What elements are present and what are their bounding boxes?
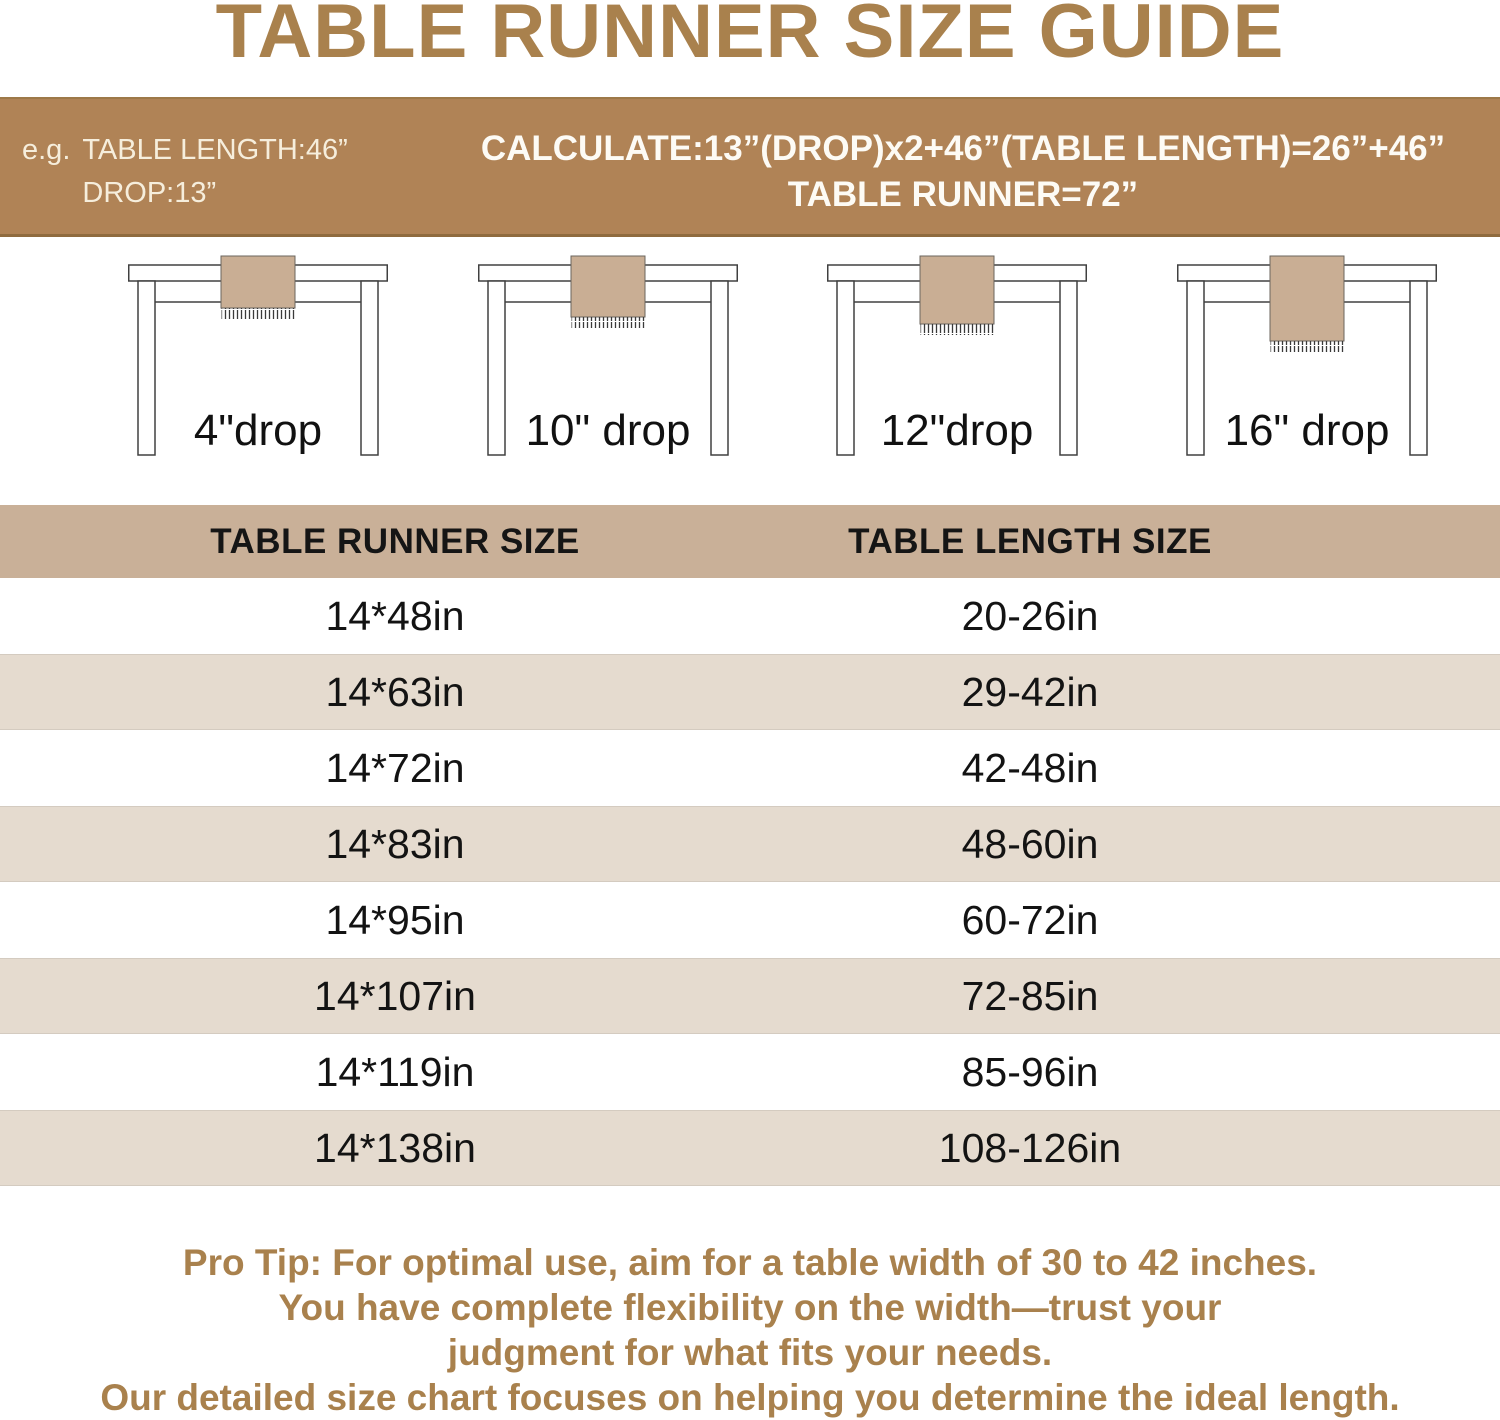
table-leg (1410, 281, 1427, 455)
example-lines: TABLE LENGTH:46” DROP:13” (82, 129, 347, 215)
pro-tip-line-3: judgment for what fits your needs. (0, 1330, 1500, 1375)
pro-tip-line-4: Our detailed size chart focuses on helpi… (0, 1375, 1500, 1420)
runner-size-value: 14*83in (0, 821, 790, 868)
table-length-value: 72-85in (790, 973, 1270, 1020)
runner (221, 256, 295, 308)
table-leg (1060, 281, 1077, 455)
runner-size-value: 14*119in (0, 1049, 790, 1096)
runner (920, 256, 994, 324)
column-header-table-length: TABLE LENGTH SIZE (790, 522, 1270, 562)
example-line-2: DROP:13” (82, 172, 347, 215)
table-length-value: 42-48in (790, 745, 1270, 792)
drop-label: 16" drop (1225, 406, 1390, 455)
runner-size-value: 14*63in (0, 669, 790, 716)
table-row: 14*83in 48-60in (0, 806, 1500, 882)
table-leg (711, 281, 728, 455)
runner-size-value: 14*95in (0, 897, 790, 944)
runner-size-value: 14*48in (0, 593, 790, 640)
runner-size-value: 14*72in (0, 745, 790, 792)
table-leg (1187, 281, 1204, 455)
table-drawing: 10" drop (478, 250, 738, 460)
calculation-block: CALCULATE:13”(DROP)x2+46”(TABLE LENGTH)=… (442, 126, 1484, 218)
table-length-value: 29-42in (790, 669, 1270, 716)
table-length-value: 60-72in (790, 897, 1270, 944)
runner-fringe (1270, 341, 1343, 352)
pro-tip-line-1: Pro Tip: For optimal use, aim for a tabl… (0, 1240, 1500, 1285)
runner-fringe (222, 308, 295, 319)
table-drawing: 4"drop (128, 250, 388, 460)
title-bar: TABLE RUNNER SIZE GUIDE (0, 0, 1500, 97)
table-length-value: 85-96in (790, 1049, 1270, 1096)
table-row: 14*72in 42-48in (0, 730, 1500, 806)
example-prefix: e.g. (22, 129, 70, 215)
table-drawing: 12"drop (827, 250, 1087, 460)
table-figure-10in-drop: 10" drop (478, 250, 738, 460)
table-row: 14*119in 85-96in (0, 1034, 1500, 1110)
runner-fringe (921, 324, 994, 335)
example-line-1: TABLE LENGTH:46” (82, 129, 347, 172)
size-chart: TABLE RUNNER SIZE TABLE LENGTH SIZE 14*4… (0, 505, 1500, 1186)
runner-fringe (571, 317, 644, 328)
spacer (0, 1186, 1500, 1240)
runner (571, 256, 645, 317)
calculation-line-2: TABLE RUNNER=72” (442, 172, 1484, 218)
table-length-value: 20-26in (790, 593, 1270, 640)
table-figure-12in-drop: 12"drop (827, 250, 1087, 460)
runner (1270, 256, 1344, 341)
table-leg (488, 281, 505, 455)
table-row: 14*63in 29-42in (0, 654, 1500, 730)
pro-tip: Pro Tip: For optimal use, aim for a tabl… (0, 1240, 1500, 1420)
table-leg (361, 281, 378, 455)
column-header-runner-size: TABLE RUNNER SIZE (0, 522, 790, 562)
table-leg (837, 281, 854, 455)
table-row: 14*107in 72-85in (0, 958, 1500, 1034)
table-drawing: 16" drop (1177, 250, 1437, 460)
page-title: TABLE RUNNER SIZE GUIDE (216, 0, 1285, 64)
table-figure-16in-drop: 16" drop (1177, 250, 1437, 460)
runner-size-value: 14*107in (0, 973, 790, 1020)
example-block: e.g. TABLE LENGTH:46” DROP:13” (22, 129, 442, 215)
table-length-value: 48-60in (790, 821, 1270, 868)
runner-size-value: 14*138in (0, 1125, 790, 1172)
size-chart-header: TABLE RUNNER SIZE TABLE LENGTH SIZE (0, 505, 1500, 578)
drop-illustrations: 4"drop 10" drop 12"drop (0, 237, 1500, 505)
drop-label: 12"drop (881, 406, 1034, 455)
table-length-value: 108-126in (790, 1125, 1270, 1172)
pro-tip-line-2: You have complete flexibility on the wid… (0, 1285, 1500, 1330)
table-row: 14*138in 108-126in (0, 1110, 1500, 1186)
drop-label: 10" drop (525, 406, 690, 455)
drop-label: 4"drop (194, 406, 322, 455)
table-row: 14*48in 20-26in (0, 578, 1500, 654)
calculation-line-1: CALCULATE:13”(DROP)x2+46”(TABLE LENGTH)=… (442, 126, 1484, 172)
table-row: 14*95in 60-72in (0, 882, 1500, 958)
table-leg (138, 281, 155, 455)
table-figure-4in-drop: 4"drop (128, 250, 388, 460)
example-banner: e.g. TABLE LENGTH:46” DROP:13” CALCULATE… (0, 97, 1500, 237)
